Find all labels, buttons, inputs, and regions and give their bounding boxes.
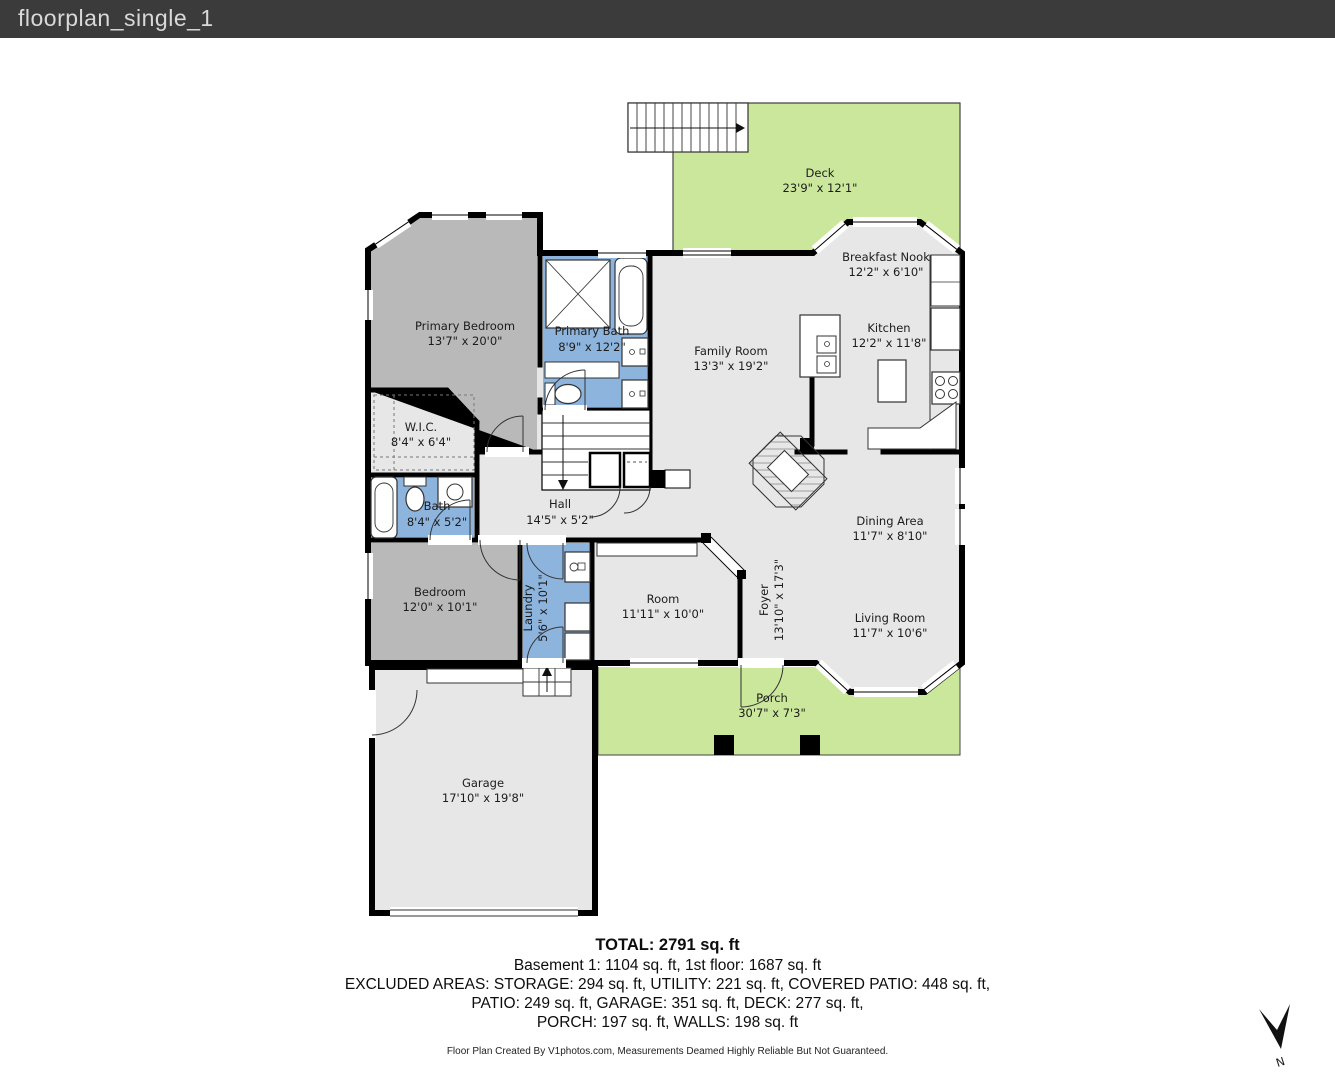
room-dims: 11'7" x 8'10" bbox=[853, 529, 928, 543]
washer-icon bbox=[565, 603, 590, 631]
garage-door bbox=[390, 907, 578, 919]
room-label: W.I.C. bbox=[405, 420, 437, 434]
room-label: Primary Bath bbox=[555, 324, 630, 338]
room-dims: 8'9" x 12'2" bbox=[558, 340, 626, 354]
porch-post bbox=[800, 735, 820, 755]
room-label: Hall bbox=[549, 497, 571, 511]
room-label: Breakfast Nook bbox=[842, 250, 930, 264]
floorplan-page: floorplan_single_1 bbox=[0, 0, 1335, 1080]
excluded-areas-text-2: PATIO: 249 sq. ft, GARAGE: 351 sq. ft, D… bbox=[0, 995, 1335, 1013]
room-dims: 13'7" x 20'0" bbox=[428, 334, 503, 348]
room-dims: 8'4" x 6'4" bbox=[391, 435, 451, 449]
garage-room bbox=[372, 667, 595, 913]
toilet-icon bbox=[545, 383, 581, 405]
room-label: Primary Bedroom bbox=[415, 319, 515, 333]
floorplan-drawing: Deck 23'9" x 12'1" Breakfast Nook 12'2" … bbox=[0, 0, 1335, 1080]
room-dims: 5'6" x 10'1" bbox=[536, 574, 550, 642]
excluded-areas-text-3: PORCH: 197 sq. ft, WALLS: 198 sq. ft bbox=[0, 1014, 1335, 1032]
room-label: Porch bbox=[756, 691, 788, 705]
room-label: Garage bbox=[462, 776, 504, 790]
room-dims: 8'4" x 5'2" bbox=[407, 515, 467, 529]
title-bar: floorplan_single_1 bbox=[0, 0, 1335, 38]
excluded-areas-text: EXCLUDED AREAS: STORAGE: 294 sq. ft, UTI… bbox=[0, 976, 1335, 994]
room-label: Laundry bbox=[521, 584, 535, 631]
dryer-icon bbox=[565, 633, 590, 660]
room-dims: 12'2" x 11'8" bbox=[852, 336, 927, 350]
page-title: floorplan_single_1 bbox=[0, 0, 1335, 37]
room-label: Living Room bbox=[855, 611, 926, 625]
room-dims: 13'3" x 19'2" bbox=[694, 359, 769, 373]
room-dims: 17'10" x 19'8" bbox=[442, 791, 524, 805]
room-label: Room bbox=[647, 592, 680, 606]
bathtub-icon bbox=[615, 258, 647, 334]
sliding-door bbox=[683, 248, 731, 258]
room-label: Foyer bbox=[757, 584, 771, 616]
room-label: Dining Area bbox=[856, 514, 923, 528]
kitchen-island bbox=[878, 360, 906, 402]
laundry-fixtures bbox=[565, 552, 590, 660]
room-label: Bath bbox=[424, 499, 451, 513]
room-dims: 30'7" x 7'3" bbox=[738, 706, 806, 720]
room-dims: 14'5" x 5'2" bbox=[526, 513, 594, 527]
credit-text: Floor Plan Created By V1photos.com, Meas… bbox=[0, 1046, 1335, 1057]
room-dims: 13'10" x 17'3" bbox=[772, 559, 786, 641]
shower-icon bbox=[546, 260, 610, 328]
room-label: Kitchen bbox=[867, 321, 910, 335]
room-dims: 11'11" x 10'0" bbox=[622, 607, 704, 621]
garage-steps-icon bbox=[523, 666, 571, 696]
porch-post bbox=[714, 735, 734, 755]
room-dims: 12'2" x 6'10" bbox=[849, 265, 924, 279]
room-label: Bedroom bbox=[414, 585, 466, 599]
deck-stairs-icon bbox=[628, 103, 748, 152]
room-dims: 23'9" x 12'1" bbox=[783, 181, 858, 195]
total-area-text: TOTAL: 2791 sq. ft bbox=[0, 936, 1335, 955]
room-label: Family Room bbox=[694, 344, 767, 358]
room-label: Deck bbox=[806, 166, 835, 180]
room-dims: 12'0" x 10'1" bbox=[403, 600, 478, 614]
floor-areas-text: Basement 1: 1104 sq. ft, 1st floor: 1687… bbox=[0, 957, 1335, 975]
room-dims: 11'7" x 10'6" bbox=[853, 626, 928, 640]
bathtub-icon bbox=[371, 477, 397, 538]
